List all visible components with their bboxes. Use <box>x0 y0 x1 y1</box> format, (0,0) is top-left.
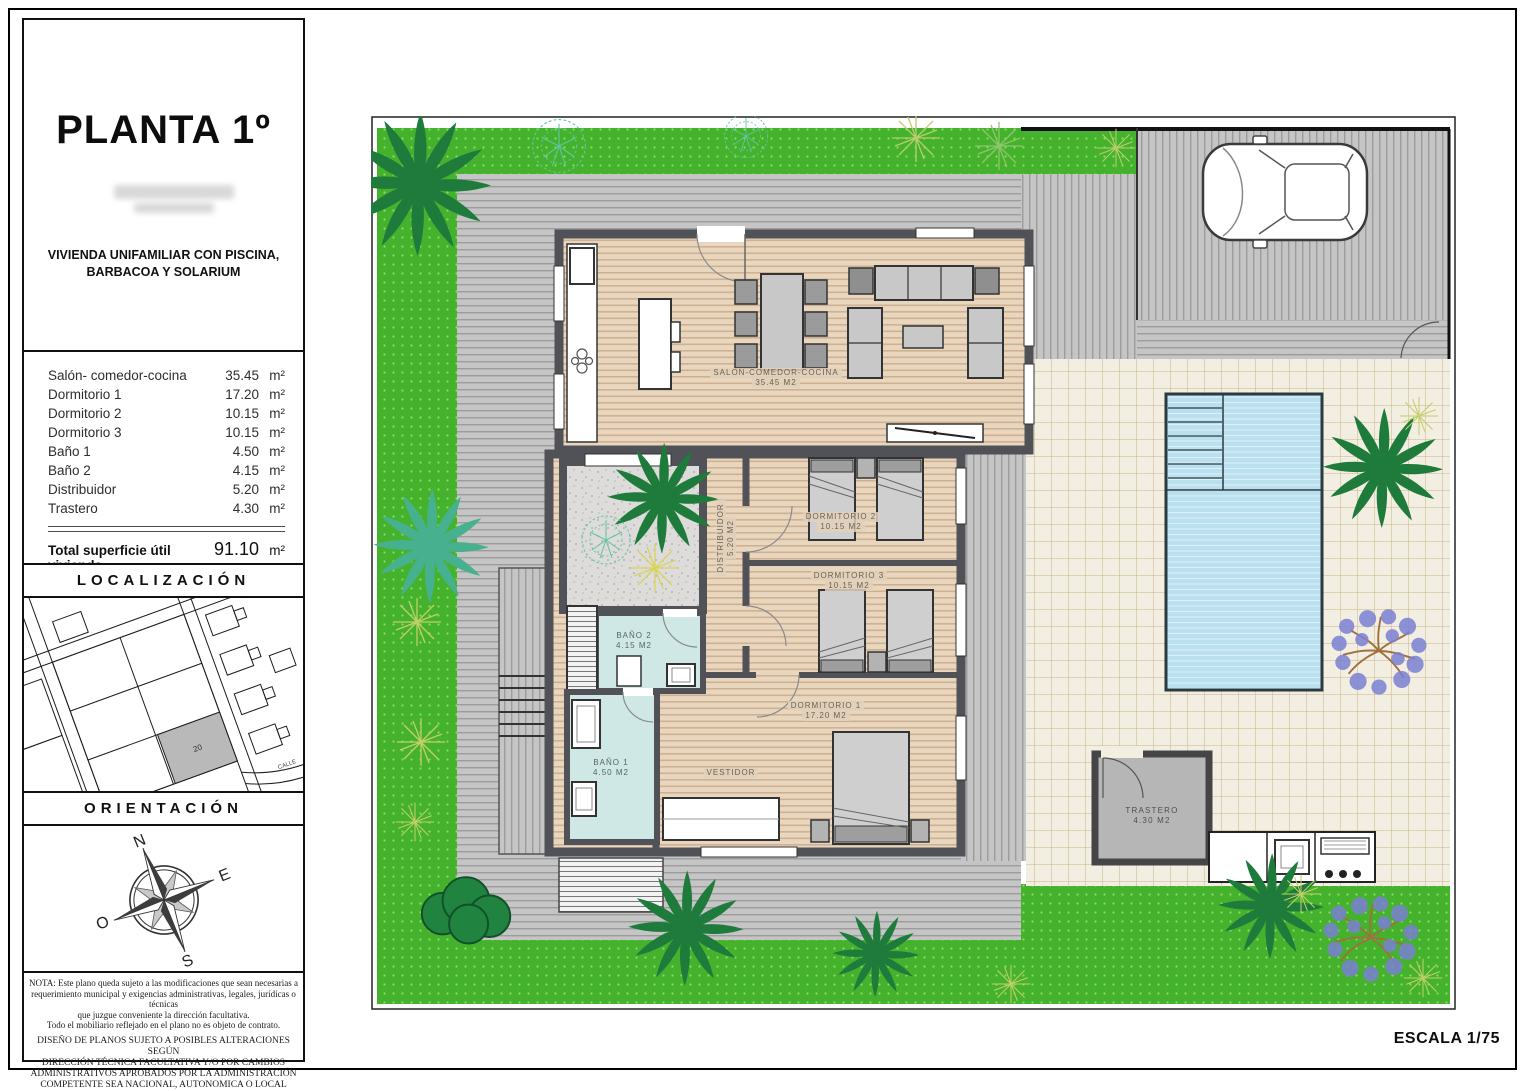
divider <box>48 526 285 532</box>
compass-o: O <box>94 913 112 933</box>
trastero-room <box>1095 746 1209 862</box>
room-label-vestidor: VESTIDOR <box>671 768 791 778</box>
nota-line: requerimiento municipal y exigencias adm… <box>24 989 303 1010</box>
area-unit: m² <box>259 385 285 404</box>
diseno-line: DIRECCIÓN TÉCNICA FACULTATIVA Y/O POR CA… <box>24 1058 303 1069</box>
diseno-block: DISEÑO DE PLANOS SUJETO A POSIBLES ALTER… <box>24 1036 303 1091</box>
car <box>1203 136 1367 248</box>
floor-plan: SALON-COMEDOR-COCINA 35.45 M2 DORMITORIO… <box>371 116 1456 1010</box>
area-row-salon: Salón- comedor-cocina35.45m² <box>48 366 285 385</box>
area-unit: m² <box>259 404 285 423</box>
info-panel: PLANTA 1º VIVIENDA UNIFAMILIAR CON PISCI… <box>22 18 305 1062</box>
area-row-trastero: Trastero4.30m² <box>48 499 285 518</box>
location-map: 20 CALLE CALLE <box>22 596 305 793</box>
diseno-line: DISEÑO DE PLANOS SUJETO A POSIBLES ALTER… <box>24 1036 303 1058</box>
room-area: 10.15 M2 <box>817 522 864 532</box>
living-room <box>554 226 1034 450</box>
logo-watermark <box>84 179 243 221</box>
area-row-dormitorio2: Dormitorio 210.15m² <box>48 404 285 423</box>
area-label: Trastero <box>48 499 209 518</box>
area-label: Distribuidor <box>48 480 209 499</box>
notes-box: NOTA: Este plano queda sujeto a las modi… <box>22 971 305 1062</box>
area-value: 4.50 <box>209 442 259 461</box>
diseno-line: COMPETENTE SEA NACIONAL, AUTONOMICA O LO… <box>24 1080 303 1091</box>
nota-line: Todo el mobiliario reflejado en el plano… <box>24 1020 303 1031</box>
diseno-line: ADMINISTRATIVOS APROBADOS POR LA ADMINIS… <box>24 1069 303 1080</box>
room-name: VESTIDOR <box>704 768 759 778</box>
room-label-dormitorio-1: DORMITORIO 1 17.20 M2 <box>716 701 936 721</box>
room-label-salon: SALON-COMEDOR-COCINA 35.45 M2 <box>666 368 886 388</box>
room-name: DORMITORIO 3 <box>811 571 888 581</box>
room-area: 5.20 M2 <box>726 517 736 559</box>
area-row-bano2: Baño 24.15m² <box>48 461 285 480</box>
room-label-bano-2: BAÑO 2 4.15 M2 <box>576 631 692 651</box>
area-row-dormitorio3: Dormitorio 310.15m² <box>48 423 285 442</box>
area-label: Dormitorio 2 <box>48 404 209 423</box>
area-unit: m² <box>259 480 285 499</box>
room-label-bano-1: BAÑO 1 4.50 M2 <box>553 758 669 778</box>
area-label: Dormitorio 1 <box>48 385 209 404</box>
room-name: DISTRIBUIDOR <box>716 500 726 575</box>
compass-rose: N E S O <box>24 826 303 971</box>
floor-plan-svg <box>371 116 1456 1010</box>
area-unit: m² <box>259 366 285 385</box>
room-area: 35.45 M2 <box>752 378 799 388</box>
room-label-dormitorio-3: DORMITORIO 3 10.15 M2 <box>739 571 959 591</box>
room-name: DORMITORIO 1 <box>788 701 865 711</box>
total-unit: m² <box>259 543 285 558</box>
room-name: TRASTERO <box>1122 806 1181 816</box>
area-row-bano1: Baño 14.50m² <box>48 442 285 461</box>
compass-n: N <box>131 831 148 851</box>
room-area: 4.50 M2 <box>590 768 632 778</box>
area-label: Salón- comedor-cocina <box>48 366 209 385</box>
compass-box: N E S O <box>22 824 305 973</box>
dining-set <box>735 274 827 370</box>
area-label: Baño 1 <box>48 442 209 461</box>
total-value: 91.10 <box>197 539 259 560</box>
room-area: 4.30 M2 <box>1130 816 1173 826</box>
nota-line: NOTA: Este plano queda sujeto a las modi… <box>24 978 303 989</box>
areas-table: Salón- comedor-cocina35.45m² Dormitorio … <box>22 350 305 565</box>
scale-label: ESCALA 1/75 <box>1378 1030 1500 1048</box>
room-area: 4.15 M2 <box>613 641 655 651</box>
east-deck-strip <box>961 451 1026 861</box>
room-name: DORMITORIO 2 <box>803 512 880 522</box>
walkway <box>1137 320 1450 359</box>
room-area: 10.15 M2 <box>825 581 872 591</box>
vestidor-closet <box>663 798 779 840</box>
area-row-distribuidor: Distribuidor5.20m² <box>48 480 285 499</box>
area-value: 35.45 <box>209 366 259 385</box>
area-value: 17.20 <box>209 385 259 404</box>
compass-e: E <box>217 866 233 886</box>
area-value: 10.15 <box>209 423 259 442</box>
room-name: BAÑO 1 <box>590 758 631 768</box>
subtitle-line-1: VIVIENDA UNIFAMILIAR CON PISCINA, <box>24 247 303 264</box>
plan-subtitle: VIVIENDA UNIFAMILIAR CON PISCINA, BARBAC… <box>24 247 303 281</box>
area-label: Dormitorio 3 <box>48 423 209 442</box>
area-unit: m² <box>259 423 285 442</box>
swimming-pool <box>1166 394 1322 690</box>
compass-s: S <box>180 952 196 971</box>
area-row-dormitorio1: Dormitorio 117.20m² <box>48 385 285 404</box>
area-value: 10.15 <box>209 404 259 423</box>
area-label: Baño 2 <box>48 461 209 480</box>
room-label-trastero: TRASTERO 4.30 M2 <box>1094 806 1210 826</box>
compass-main-points <box>93 828 235 971</box>
room-label-dormitorio-2: DORMITORIO 2 10.15 M2 <box>731 512 951 532</box>
entry-door-gap <box>697 226 745 242</box>
tv-unit <box>887 424 983 442</box>
area-value: 4.30 <box>209 499 259 518</box>
area-unit: m² <box>259 499 285 518</box>
grill <box>1321 838 1369 854</box>
orientacion-header: ORIENTACIÓN <box>22 791 305 826</box>
room-name: SALON-COMEDOR-COCINA <box>710 368 841 378</box>
area-value: 5.20 <box>209 480 259 499</box>
area-unit: m² <box>259 442 285 461</box>
title-box: PLANTA 1º VIVIENDA UNIFAMILIAR CON PISCI… <box>22 18 305 352</box>
area-value: 4.15 <box>209 461 259 480</box>
area-unit: m² <box>259 461 285 480</box>
room-name: BAÑO 2 <box>613 631 654 641</box>
subtitle-line-2: BARBACOA Y SOLARIUM <box>24 264 303 281</box>
fridge <box>570 248 594 284</box>
room-area: 17.20 M2 <box>802 711 849 721</box>
page-title: PLANTA 1º <box>24 108 303 153</box>
side-deck <box>1021 174 1137 359</box>
location-map-svg: 20 CALLE CALLE <box>24 598 303 791</box>
localizacion-header: LOCALIZACIÓN <box>22 563 305 598</box>
nota-line: que juzgue conveniente la dirección facu… <box>24 1010 303 1021</box>
room-label-distribuidor: DISTRIBUIDOR 5.20 M2 <box>716 473 736 603</box>
